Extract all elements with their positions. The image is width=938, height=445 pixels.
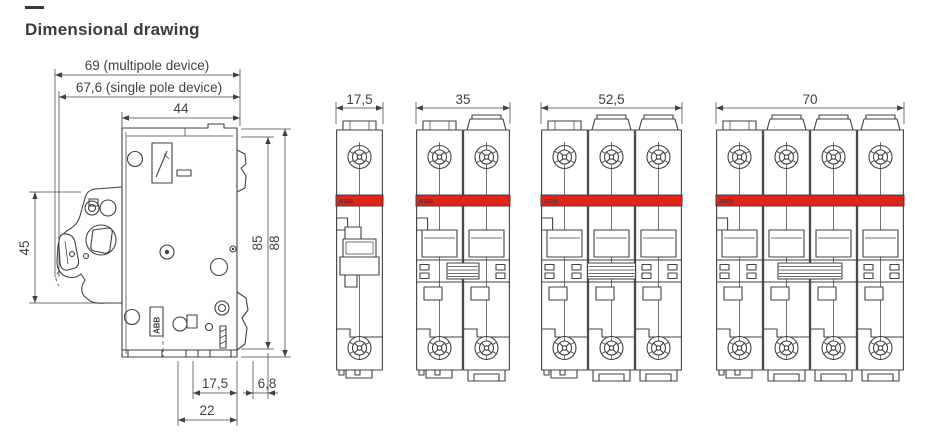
bottom-terminal-cap (768, 370, 805, 381)
dim-label: 67,6 (single pole device) (76, 80, 222, 95)
front-protrusion (56, 187, 122, 303)
front-view-svg: 70ABB (696, 94, 924, 394)
top-terminal-cap (592, 115, 631, 130)
brand-band: ABB (541, 195, 682, 206)
toggle-handle (863, 230, 898, 257)
front-width-label: 70 (802, 94, 817, 107)
page-title: Dimensional drawing (25, 20, 200, 40)
terminal-screw-icon (869, 337, 892, 360)
terminal-screw-icon (428, 146, 451, 169)
toggle-handle (769, 230, 804, 257)
toggle-handle (422, 230, 457, 257)
top-terminal-cap (548, 121, 581, 130)
toggle-handle (469, 230, 504, 257)
top-terminal-cap (861, 115, 900, 130)
dim-clip-depth: 6,8 (243, 353, 278, 399)
bottom-terminal-cap (593, 370, 630, 381)
front-width-label: 35 (455, 94, 470, 107)
toggle-handle (547, 230, 582, 257)
front-view-4-pole: 70ABB (696, 94, 924, 399)
top-terminal-cap (423, 121, 456, 130)
top-terminal-cap (639, 115, 678, 130)
abb-logo-text: ABB (544, 199, 558, 206)
dim-label: 17,5 (202, 376, 228, 391)
top-terminal-cap (814, 115, 853, 130)
dim-label: 6,8 (258, 376, 277, 391)
terminal-screw-icon (647, 146, 670, 169)
brand-band: ABB (336, 195, 383, 206)
bottom-terminal-cap (719, 370, 752, 378)
top-terminal-cap (767, 115, 806, 130)
side-view-drawing: ABB (15, 58, 315, 445)
front-width-label: 52,5 (598, 94, 624, 107)
toggle-handle (816, 230, 851, 257)
front-view-svg: 52,5ABB (521, 94, 702, 394)
dim-label: 45 (17, 240, 32, 255)
front-view-2-pole: 35ABB (396, 94, 530, 399)
bottom-terminal-cap (640, 370, 677, 381)
dim-label: 88 (267, 235, 282, 250)
header-dash (25, 6, 44, 9)
top-terminal-cap (723, 121, 756, 130)
terminal-screw-icon (553, 337, 576, 360)
svg-text:ABB: ABB (153, 316, 162, 334)
brand-band: ABB (716, 195, 904, 206)
front-width-label: 17,5 (346, 94, 372, 107)
terminal-screw-icon (822, 146, 845, 169)
dim-label: 22 (199, 403, 214, 418)
terminal-screw-icon (869, 146, 892, 169)
dim-label: 69 (multipole device) (85, 58, 210, 73)
bottom-terminal-cap (815, 370, 852, 381)
bottom-terminal-cap (468, 370, 505, 381)
abb-logo-text: ABB (419, 199, 433, 206)
top-terminal-cap (467, 115, 506, 130)
front-view-3-pole: 52,5ABB (521, 94, 702, 399)
front-view-svg: 17,5ABB (316, 94, 403, 394)
terminal-screw-icon (822, 337, 845, 360)
terminal-screw-icon (428, 337, 451, 360)
brand-band: ABB (416, 195, 510, 206)
top-terminal-cap (343, 121, 376, 130)
abb-logo-text: ABB (719, 199, 733, 206)
terminal-screw-icon (775, 146, 798, 169)
abb-logo-text: ABB (339, 199, 353, 206)
terminal-screw-icon (728, 337, 751, 360)
breaker-body-outline (122, 124, 237, 357)
bottom-terminal-cap (862, 370, 899, 381)
terminal-screw-icon (475, 146, 498, 169)
toggle-handle (641, 230, 676, 257)
breaker-body: ABB (122, 124, 248, 357)
dim-rail-width: 22 (178, 361, 237, 426)
toggle-handle (722, 230, 757, 257)
dim-label: 85 (250, 235, 265, 250)
dimensional-drawing-page: Dimensional drawing (0, 0, 938, 445)
din-clip-bottom (237, 292, 248, 350)
bottom-terminal-cap (339, 370, 372, 378)
din-clip-top (237, 150, 246, 192)
front-width-dimension: 17,5 (336, 94, 383, 124)
front-view-1-pole: 17,5ABB (316, 94, 403, 399)
dim-total-height: 88 (241, 129, 291, 357)
terminal-screw-icon (348, 337, 371, 360)
bottom-terminal-cap (544, 370, 577, 378)
terminal-screw-icon (647, 337, 670, 360)
terminal-screw-icon (600, 337, 623, 360)
terminal-screw-icon (775, 337, 798, 360)
bottom-terminal-cap (419, 370, 452, 378)
terminal-screw-icon (475, 337, 498, 360)
dim-label: 44 (173, 101, 189, 116)
terminal-screw-icon (553, 146, 576, 169)
toggle-handle (594, 230, 629, 257)
terminal-screw-icon (728, 146, 751, 169)
page-header: Dimensional drawing (25, 6, 200, 40)
terminal-screw-icon (348, 146, 371, 169)
front-view-svg: 35ABB (396, 94, 530, 394)
terminal-screw-icon (600, 146, 623, 169)
